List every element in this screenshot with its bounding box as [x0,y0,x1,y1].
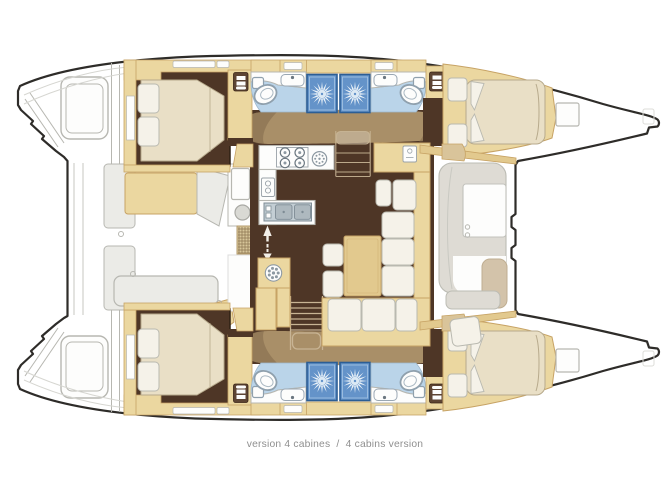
svg-text:version 4 cabines / 4 cabins: version 4 cabines / 4 cabins version [247,439,424,450]
